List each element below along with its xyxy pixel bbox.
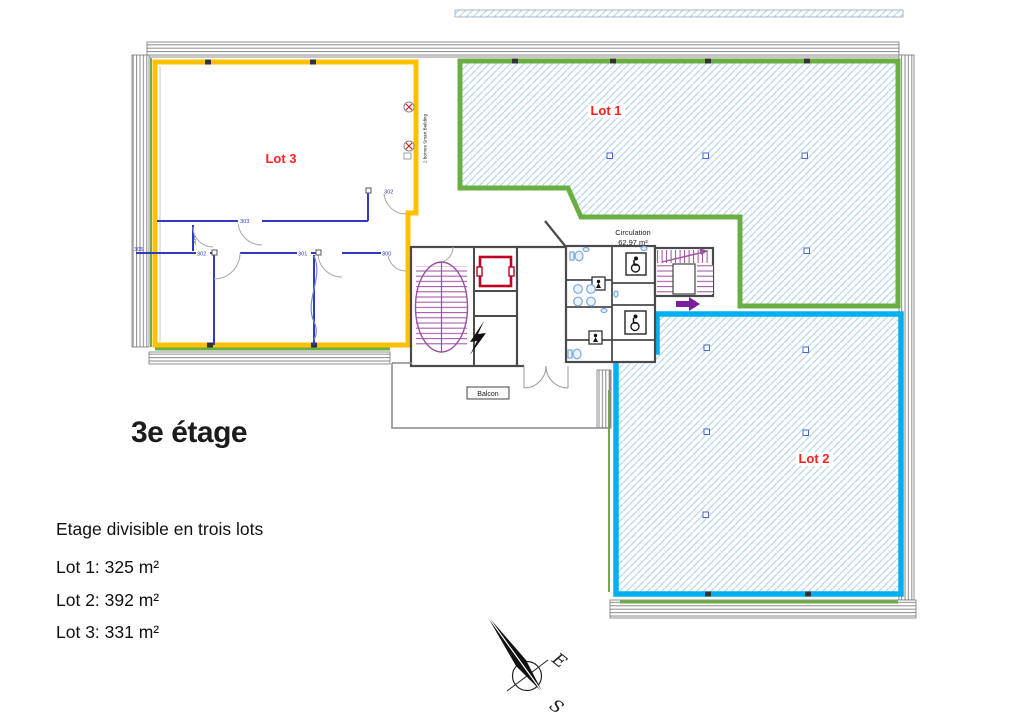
- accessible-wc-sign: [625, 311, 646, 334]
- room-300-label: 300: [382, 252, 391, 258]
- legend-lot2: Lot 2: 392 m²: [56, 588, 263, 613]
- room-302-label: 302: [197, 252, 206, 258]
- balcony-double-door: [524, 366, 568, 388]
- lot2-label: Lot 2: [798, 451, 829, 466]
- room-302-top-label: 302: [384, 190, 393, 196]
- circulation-arrow-icon: [676, 297, 700, 311]
- vertical-annotation: 2 bornes Smart Building: [423, 114, 428, 163]
- floor-title: 3e étage: [131, 416, 247, 450]
- facade-band-top: [147, 42, 899, 57]
- top-terrace-hatch-strip: [455, 10, 903, 17]
- legend-block: Etage divisible en trois lots Lot 1: 325…: [56, 519, 263, 653]
- circulation-area: 62,97 m²: [618, 238, 648, 247]
- stairs-left: [416, 262, 468, 352]
- legend-heading: Etage divisible en trois lots: [56, 519, 263, 540]
- legend-lot1: Lot 1: 325 m²: [56, 555, 263, 580]
- facade-band-bottom-left: [149, 352, 390, 364]
- marker-box: [404, 153, 411, 159]
- lot3-label: Lot 3: [265, 151, 296, 166]
- lot1-label: Lot 1: [590, 103, 621, 118]
- room-301-label: 301: [298, 252, 307, 258]
- legend-lot3: Lot 3: 331 m²: [56, 620, 263, 645]
- room-303-label: 303: [240, 219, 249, 225]
- compass-south-label: S: [545, 696, 566, 719]
- elevator: [477, 257, 514, 286]
- wc-person-sign: [589, 331, 602, 344]
- lot2-region: [616, 314, 901, 594]
- facade-band-left: [132, 55, 149, 347]
- lot3-region: [155, 62, 416, 345]
- balcony-label: Balcon: [477, 391, 499, 398]
- compass-east-label: E: [547, 649, 570, 673]
- accessible-wc-sign: [626, 253, 646, 275]
- balcony: Balcon: [392, 363, 610, 428]
- circulation-label: Circulation: [615, 228, 650, 237]
- floorplan-page: 303 304 302 301 300 302 305 2 bornes Sma…: [0, 0, 1011, 722]
- compass-needle-midline: [486, 614, 543, 693]
- stairs-right: [655, 248, 713, 296]
- room-304-label: 304: [192, 236, 198, 245]
- room-305-label: 305: [134, 247, 143, 253]
- compass: E S: [486, 614, 571, 719]
